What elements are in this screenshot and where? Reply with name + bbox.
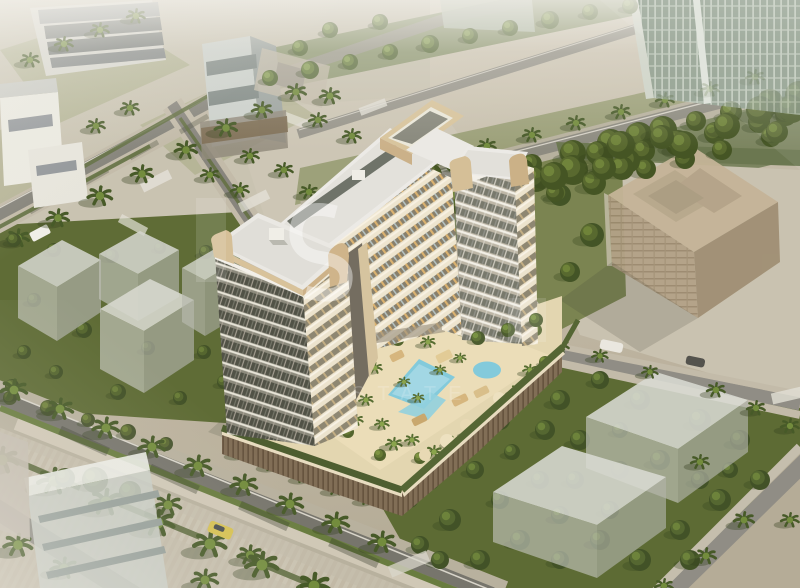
svg-text:STATE: STATE <box>352 383 473 405</box>
